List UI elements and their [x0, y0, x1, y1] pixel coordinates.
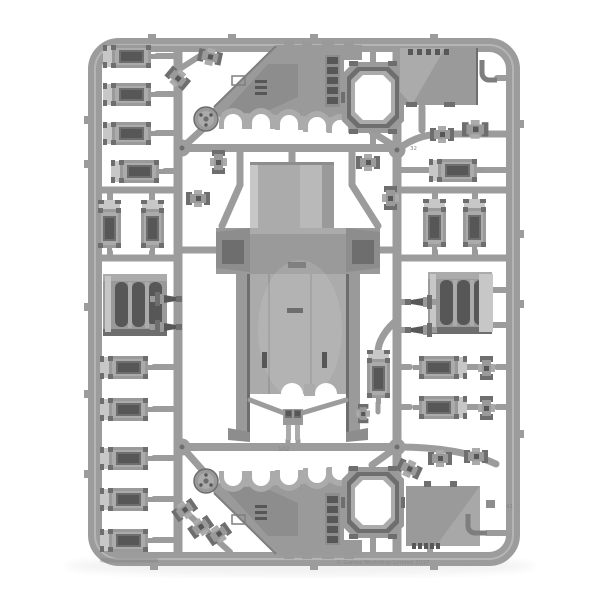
door-panel	[413, 356, 467, 379]
fitting-clip	[428, 450, 452, 467]
door-panel	[429, 159, 483, 182]
door-panel	[111, 160, 165, 183]
roof-panel-top-right	[400, 48, 497, 107]
fitting-clip	[478, 356, 495, 380]
fitting-clip	[430, 126, 454, 143]
door-panel	[103, 83, 157, 106]
fitting-clip	[382, 186, 399, 210]
sprue-photo-svg: © Games Workshop Limited 2017 32 41 102	[0, 0, 600, 600]
fitting-clip	[210, 150, 227, 174]
door-panel	[463, 199, 486, 253]
door-panel	[100, 398, 154, 421]
door-panel	[367, 350, 390, 404]
fitting-clip	[462, 120, 488, 139]
embossed-part-number: 102	[278, 446, 290, 453]
fitting-clip	[478, 396, 495, 420]
door-panel	[100, 529, 154, 552]
door-panel	[103, 45, 157, 68]
door-panel	[103, 122, 157, 145]
fitting-clip	[186, 190, 210, 207]
hatch-ring-top	[341, 61, 405, 134]
fitting-clip	[356, 154, 380, 171]
door-panel	[423, 199, 446, 253]
embossed-part-number: 32	[410, 146, 417, 152]
vent-block-right	[428, 272, 493, 334]
roof-panel-bottom-right	[406, 481, 495, 549]
door-panel	[100, 488, 154, 511]
sprue-photo: © Games Workshop Limited 2017 32 41 102	[0, 0, 600, 600]
hatch-ring-bottom	[341, 466, 405, 539]
embossed-strip	[100, 558, 158, 563]
door-panel	[141, 200, 164, 254]
hull-part	[216, 162, 380, 442]
embossed-part-number: 41	[506, 504, 513, 510]
door-panel	[100, 356, 154, 379]
door-panel	[98, 200, 121, 254]
tow-bracket-part	[283, 409, 303, 440]
fitting-clip	[464, 448, 488, 465]
embossed-copyright: © Games Workshop Limited 2017	[336, 559, 430, 566]
door-panel	[100, 447, 154, 470]
fitting-clip	[356, 404, 370, 423]
door-panel	[413, 396, 467, 419]
